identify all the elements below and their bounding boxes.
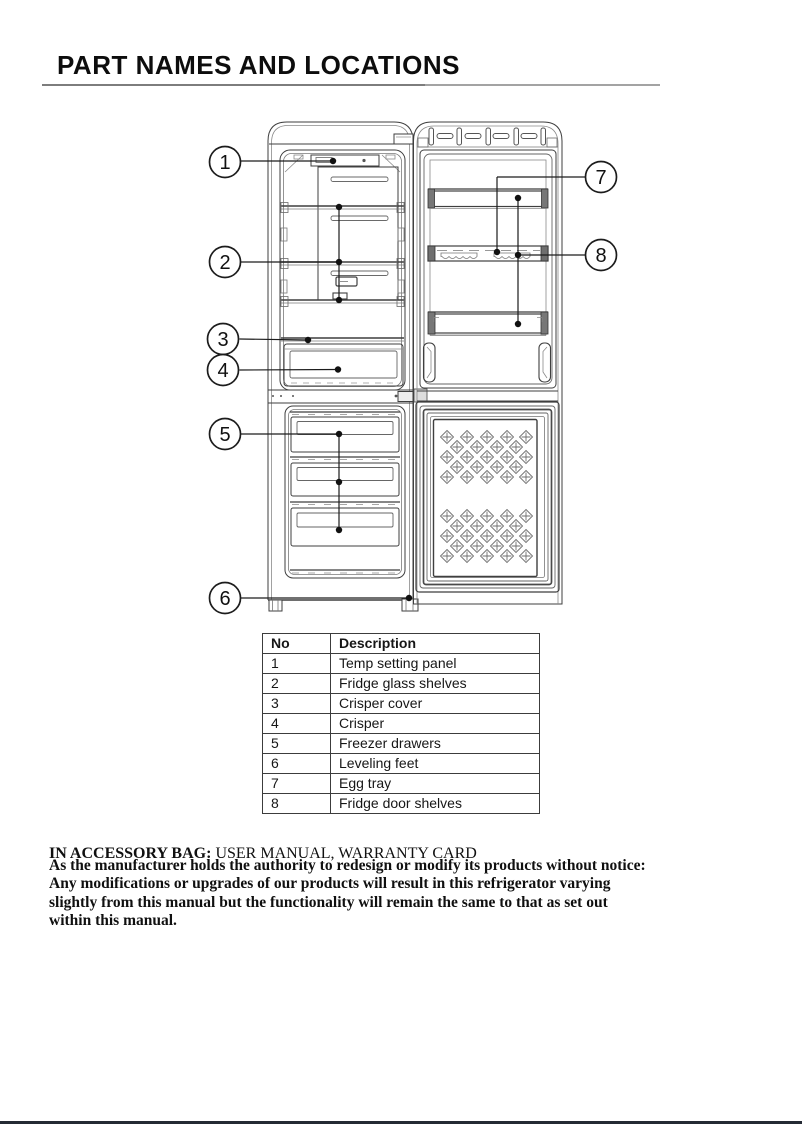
part-no: 7 [263, 774, 331, 794]
part-no: 4 [263, 714, 331, 734]
part-no: 8 [263, 794, 331, 814]
freezer-door [416, 402, 559, 592]
svg-text:3: 3 [217, 329, 228, 351]
table-row: 4 Crisper [263, 714, 540, 734]
table-row: 8 Fridge door shelves [263, 794, 540, 814]
door-top-slots [418, 128, 557, 147]
table-row: 1 Temp setting panel [263, 654, 540, 674]
door-shelf-top [428, 189, 548, 209]
door-shelf-bottom [428, 312, 548, 336]
part-desc: Leveling feet [331, 754, 540, 774]
title-underline [42, 84, 660, 86]
callout-2: 2 [210, 247, 241, 278]
callout-4: 4 [208, 355, 239, 386]
svg-text:4: 4 [217, 360, 228, 382]
part-no: 6 [263, 754, 331, 774]
egg-tray-shelf [428, 246, 548, 261]
callout-5: 5 [210, 419, 241, 450]
table-row: 7 Egg tray [263, 774, 540, 794]
part-desc: Fridge glass shelves [331, 674, 540, 694]
door-handle-recesses [424, 343, 551, 382]
callout-8: 8 [586, 240, 617, 271]
part-desc: Freezer drawers [331, 734, 540, 754]
parts-table: No Description 1 Temp setting panel 2 Fr… [262, 633, 540, 814]
svg-text:1: 1 [219, 152, 230, 174]
page-title: PART NAMES AND LOCATIONS [57, 50, 460, 81]
table-row: 3 Crisper cover [263, 694, 540, 714]
header-description: Description [331, 634, 540, 654]
callout-1: 1 [210, 147, 241, 178]
fridge-door-drawing [414, 122, 563, 604]
notice-line: As the manufacturer holds the authority … [49, 857, 779, 875]
part-no: 1 [263, 654, 331, 674]
svg-text:2: 2 [219, 252, 230, 274]
header-no: No [263, 634, 331, 654]
part-no: 5 [263, 734, 331, 754]
notice-line: within this manual. [49, 912, 779, 930]
table-header-row: No Description [263, 634, 540, 654]
table-row: 6 Leveling feet [263, 754, 540, 774]
part-no: 2 [263, 674, 331, 694]
page-bottom-rule [0, 1121, 802, 1124]
part-no: 3 [263, 694, 331, 714]
notice-line: slightly from this manual but the functi… [49, 894, 779, 912]
svg-text:8: 8 [595, 245, 606, 267]
fridge-cabinet-drawing [268, 122, 427, 611]
svg-text:6: 6 [219, 588, 230, 610]
part-desc: Temp setting panel [331, 654, 540, 674]
manufacturer-notice: As the manufacturer holds the authority … [49, 857, 779, 931]
refrigerator-diagram: 1 2 3 4 5 6 7 8 [190, 100, 640, 630]
fridge-glass-shelves [281, 203, 404, 307]
notice-line: Any modifications or upgrades of our pro… [49, 875, 779, 893]
part-desc: Fridge door shelves [331, 794, 540, 814]
part-desc: Crisper [331, 714, 540, 734]
callout-7: 7 [586, 162, 617, 193]
leveling-feet [269, 599, 418, 611]
svg-text:5: 5 [219, 424, 230, 446]
part-desc: Crisper cover [331, 694, 540, 714]
callout-3: 3 [208, 324, 239, 355]
table-row: 5 Freezer drawers [263, 734, 540, 754]
part-desc: Egg tray [331, 774, 540, 794]
table-row: 2 Fridge glass shelves [263, 674, 540, 694]
svg-text:7: 7 [595, 167, 606, 189]
callout-6: 6 [210, 583, 241, 614]
quilt-pattern [441, 431, 533, 563]
freezer-drawers [290, 412, 400, 573]
crisper-drawer [284, 344, 403, 386]
